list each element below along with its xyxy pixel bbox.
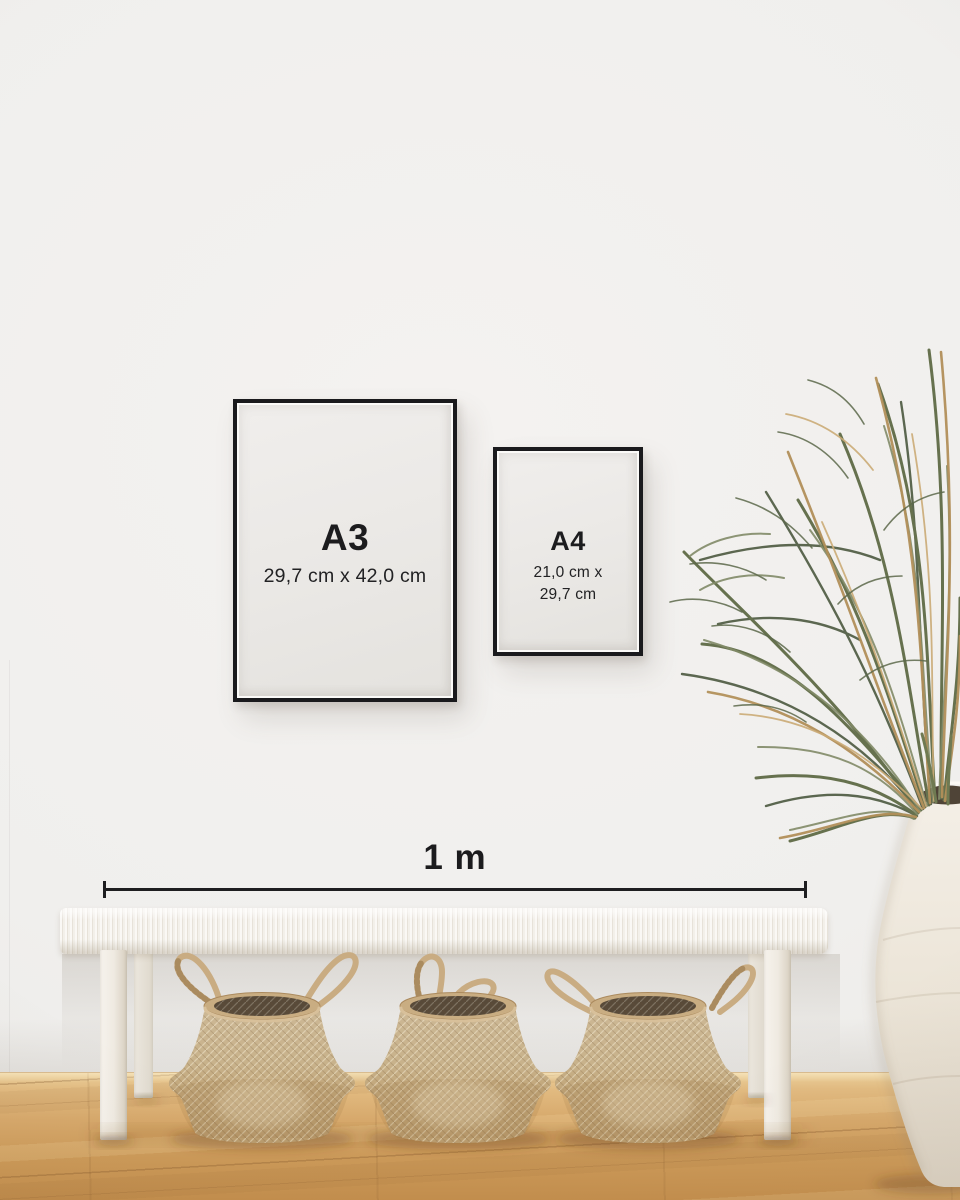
palm-plant [670, 350, 960, 841]
basket-left [169, 955, 356, 1143]
interior-size-guide-photo: A3 29,7 cm x 42,0 cm A4 21,0 cm x 29,7 c… [0, 0, 960, 1200]
basket-middle [365, 957, 551, 1143]
palm-frond-tips [670, 380, 944, 722]
baskets [169, 955, 753, 1143]
basket-right [547, 967, 753, 1143]
decor-objects [0, 0, 960, 1200]
vase [874, 783, 960, 1187]
